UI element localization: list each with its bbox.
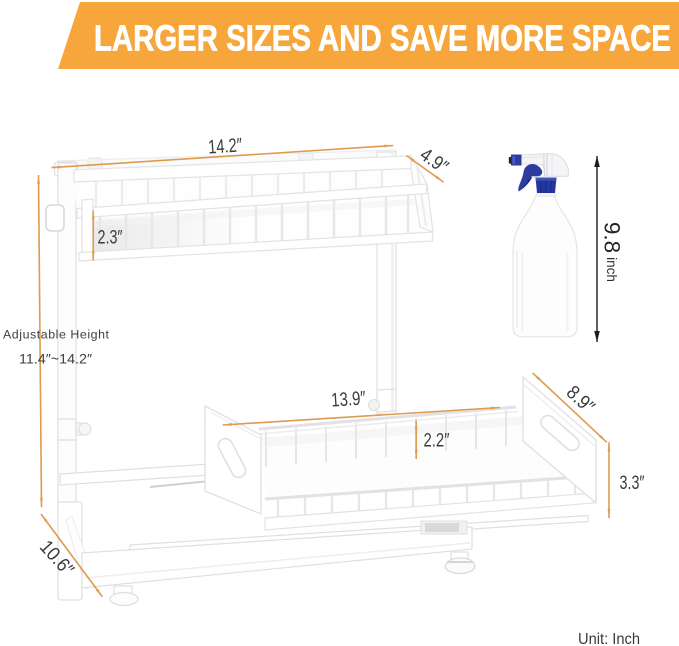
svg-text:14.2″: 14.2″	[207, 134, 243, 158]
svg-text:13.9″: 13.9″	[330, 387, 366, 411]
svg-text:inch: inch	[604, 257, 619, 282]
svg-text:9.8: 9.8	[600, 222, 625, 253]
svg-text:Adjustable Height: Adjustable Height	[3, 328, 110, 342]
svg-text:Unit: Inch: Unit: Inch	[578, 631, 640, 646]
svg-text:LARGER SIZES AND SAVE MORE SPA: LARGER SIZES AND SAVE MORE SPACE	[94, 18, 671, 59]
svg-text:2.3″: 2.3″	[98, 227, 123, 249]
svg-text:11.4″~14.2″: 11.4″~14.2″	[19, 351, 92, 367]
svg-text:2.2″: 2.2″	[424, 430, 450, 452]
svg-text:3.3″: 3.3″	[620, 472, 645, 494]
